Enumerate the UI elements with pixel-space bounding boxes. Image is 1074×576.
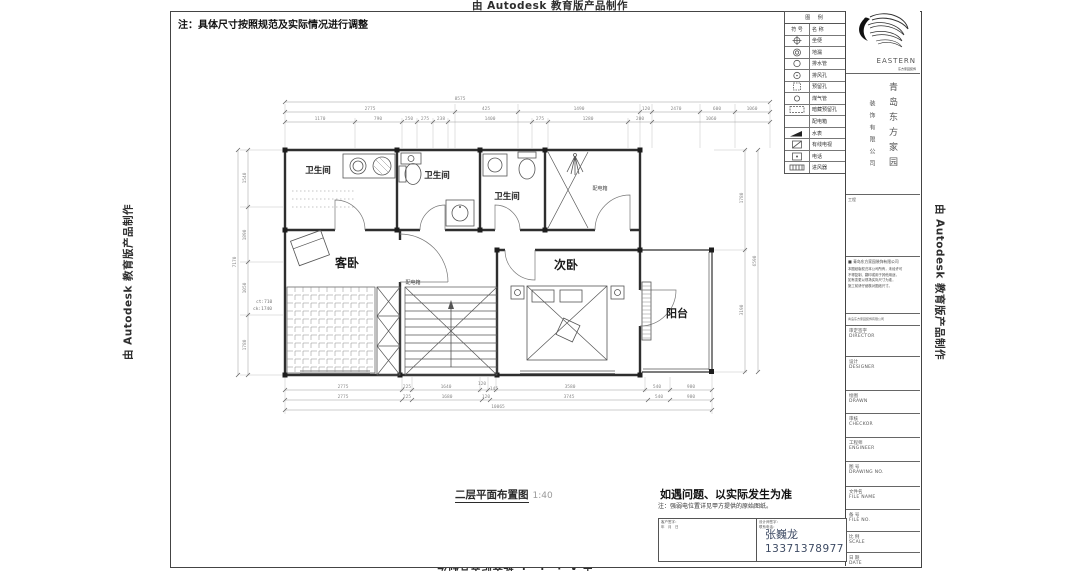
- dim-label: 540: [655, 394, 663, 400]
- blank-symbol: [785, 116, 810, 127]
- dim-label: 1490: [574, 106, 585, 112]
- company-address-line: 青岛东方家园装饰有限公司: [846, 314, 920, 326]
- bathroom-middle-fixtures: [399, 153, 474, 226]
- row-label-en: DRAWING NO.: [849, 470, 920, 475]
- row-label-en: ENGINEER: [849, 446, 920, 451]
- legend-row: 电话: [785, 151, 846, 163]
- bathroom-right-fixtures: [483, 152, 536, 179]
- label-distribution-box-upper: 配电箱: [592, 185, 607, 192]
- signature-box: 客户签字： 年 月 日 设计师签字： 联系电话： 张巍龙 13371378977: [658, 518, 847, 562]
- legend-row: 坐便: [785, 36, 846, 48]
- annotation-ct: ct:710: [256, 299, 273, 305]
- dim-label: 2775: [365, 106, 376, 112]
- double-circle-icon: [785, 47, 810, 58]
- legend-row: 水表: [785, 128, 846, 140]
- legend-name: 排水管: [810, 59, 846, 70]
- label-distribution-box-lower: 配电箱: [405, 279, 420, 286]
- dim-label: 425: [482, 106, 490, 112]
- titleblock-row-file-no: 备 号 FILE NO.: [846, 510, 920, 532]
- dim-label: 7170: [232, 256, 238, 267]
- dim-label: 6590: [752, 255, 758, 266]
- row-label-en: FILE NAME: [849, 495, 920, 500]
- dim-label: 275: [421, 116, 429, 122]
- dim-label: 1680: [442, 394, 453, 400]
- phone-outlet-icon: [785, 151, 810, 162]
- legend-name: 有线电视: [810, 139, 846, 150]
- designer-phone: 13371378977: [765, 542, 844, 557]
- row-label-en: DIRECTOR: [849, 334, 920, 339]
- row-label-en: CHECKOR: [849, 422, 920, 427]
- titleblock-row-drawn: 绘图 DRAWN: [846, 391, 920, 414]
- client-signature-cell: 客户签字： 年 月 日: [659, 519, 757, 561]
- dim-label: 1170: [315, 116, 326, 122]
- room-label-balcony: 阳台: [666, 306, 688, 320]
- dim-label: 2775: [338, 384, 349, 390]
- circle-icon: [785, 59, 810, 70]
- row-label-en: DESIGNER: [849, 365, 920, 370]
- legend-row: 排风孔: [785, 70, 846, 82]
- titleblock-row-director: 审定签字 DIRECTOR: [846, 326, 920, 357]
- company-bullet-line: 青岛东方家园装饰有限公司: [848, 259, 918, 265]
- row-label-en: FILE NO.: [849, 518, 920, 523]
- legend-col-name: 名 称: [810, 24, 846, 35]
- stairs: [405, 287, 497, 375]
- legend-name: 坐便: [810, 36, 846, 47]
- row-label-en: DATE: [849, 561, 920, 566]
- dim-label: 10065: [491, 404, 505, 410]
- dim-label: 2775: [338, 394, 349, 400]
- dim-label: 980: [687, 384, 695, 390]
- water-meter-icon: [785, 128, 810, 139]
- site-notice-note: 注：强弱电位置详见甲方提供的原始图纸。: [658, 501, 772, 510]
- company-name-left-column: 装饰有限公司: [867, 100, 876, 193]
- drawing-scale: 1:40: [533, 491, 553, 501]
- dim-label: 1890: [242, 229, 248, 240]
- dimension-lines: [238, 102, 770, 410]
- floor-plan: 8575 2775 425 1490 120 2470 600 1060 117…: [230, 90, 775, 440]
- legend-name: 地漏: [810, 47, 846, 58]
- copyright-notes-cell: 青岛东方家园装饰有限公司 本图纸版权归本公司所有，未经许可 不得复制、翻印或用于…: [846, 257, 920, 314]
- legend-row: 配电箱: [785, 116, 846, 128]
- eastern-swoosh-logo: [846, 11, 920, 59]
- legend-name: 暗藏预留孔: [810, 105, 846, 116]
- logo-wordmark: EASTERN: [846, 57, 916, 65]
- signature-rows: 审定签字 DIRECTOR 设计 DESIGNER 绘图 DRAWN 审核 CH…: [846, 326, 920, 566]
- dim-label: 2470: [671, 106, 682, 112]
- legend-name: 预留孔: [810, 82, 846, 93]
- dim-label: 540: [653, 384, 661, 390]
- legend-name: 水表: [810, 128, 846, 139]
- dim-label: 980: [687, 394, 695, 400]
- legend-row: 预留孔: [785, 82, 846, 94]
- bathroom-left-fixtures: [292, 154, 395, 207]
- drawing-title-text: 二层平面布置图: [455, 489, 529, 503]
- dim-label: 600: [713, 106, 721, 112]
- dim-label: 1280: [583, 116, 594, 122]
- balcony-detail: [642, 282, 651, 340]
- titleblock-row-file-name: 文件名 FILE NAME: [846, 487, 920, 510]
- tv-outlet-icon: [785, 139, 810, 150]
- cad-plot-page: { "watermark": "由 Autodesk 教育版产品制作", "no…: [0, 0, 1074, 576]
- dashed-square-icon: [785, 82, 810, 93]
- guest-bedroom-furniture: [287, 230, 400, 375]
- site-notice: 如遇问题、以实际发生为准: [660, 486, 792, 502]
- circle-dot-icon: [785, 70, 810, 81]
- designer-signature-cell: 设计师签字： 联系电话： 张巍龙 13371378977: [757, 519, 846, 561]
- project-name-cell: 工程: [846, 195, 920, 258]
- dim-label: 225: [403, 394, 411, 400]
- dim-label: 250: [405, 116, 413, 122]
- dim-label: 120: [478, 381, 486, 387]
- client-date-label: 年 月 日: [661, 525, 679, 530]
- drawing-title: 二层平面布置图1:40: [455, 487, 553, 502]
- legend-row: 暗藏预留孔: [785, 105, 846, 117]
- titleblock-row-date: 日 期 DATE: [846, 553, 920, 566]
- dim-label: 790: [374, 116, 382, 122]
- second-bedroom-furniture: [511, 286, 624, 360]
- dim-label: 3745: [564, 394, 575, 400]
- room-label-guest-bedroom: 客卧: [334, 255, 359, 270]
- legend-row: 进风器: [785, 162, 846, 173]
- dim-label: 1540: [242, 172, 248, 183]
- designer-signature: 张巍龙 13371378977: [765, 527, 844, 557]
- dashed-rect-icon: [785, 105, 810, 116]
- dim-label: 1060: [747, 106, 758, 112]
- dim-label: 1400: [485, 116, 496, 122]
- dim-label: 1050: [242, 282, 248, 293]
- titleblock-row-drawing-no: 图 号 DRAWING NO.: [846, 462, 920, 487]
- dim-label: 3580: [565, 384, 576, 390]
- company-logo-cell: EASTERN 东方家园装饰: [846, 11, 920, 74]
- dim-label: 145: [490, 386, 498, 392]
- dimension-ticks: [236, 100, 772, 412]
- legend-title: 图 例: [785, 12, 846, 24]
- dim-label: 225: [403, 384, 411, 390]
- dim-label: 1780: [739, 192, 745, 203]
- legend-table: 图 例 符 号 名 称 坐便 地漏 排水管 排风孔 预留孔 煤气管 暗藏预留孔 …: [784, 11, 847, 174]
- dim-label: 1640: [441, 384, 452, 390]
- titleblock-row-checkor: 审核 CHECKOR: [846, 414, 920, 438]
- dim-label: 8575: [455, 96, 466, 102]
- titleblock-row-engineer: 工程师 ENGINEER: [846, 438, 920, 462]
- shower-area: [548, 152, 588, 228]
- titleblock-row-scale: 比 例 SCALE: [846, 532, 920, 553]
- row-label-en: SCALE: [849, 540, 920, 545]
- company-name-cell: 装饰有限公司 青岛东方家园: [846, 74, 920, 194]
- legend-name: 排风孔: [810, 70, 846, 81]
- legend-name: 煤气管: [810, 93, 846, 104]
- dim-label: 1060: [706, 116, 717, 122]
- legend-header-row: 符 号 名 称: [785, 24, 846, 36]
- title-block: EASTERN 东方家园装饰 装饰有限公司 青岛东方家园 工程 青岛东方家园装饰…: [845, 11, 920, 566]
- logo-subtext: 东方家园装饰: [846, 67, 916, 71]
- dim-label: 238: [437, 116, 445, 122]
- room-label-bath-right: 卫生间: [494, 191, 520, 202]
- legend-row: 地漏: [785, 47, 846, 59]
- autodesk-watermark-right: 由 Autodesk 教育版产品制作: [933, 204, 948, 360]
- dim-label: 120: [482, 394, 490, 400]
- dim-label: 3190: [739, 304, 745, 315]
- door-swings: [335, 195, 676, 326]
- dim-label: 200: [636, 116, 644, 122]
- circle-small-icon: [785, 93, 810, 104]
- autodesk-watermark-left: 由 Autodesk 教育版产品制作: [121, 204, 136, 360]
- annotation-ck: ck:1740: [253, 306, 272, 312]
- room-label-bath-mid: 卫生间: [424, 170, 450, 181]
- client-signature-labels: 客户签字： 年 月 日: [661, 520, 679, 531]
- legend-row: 有线电视: [785, 139, 846, 151]
- dim-label: 1780: [242, 339, 248, 350]
- designer-name: 张巍龙: [765, 527, 844, 542]
- company-name-right-column: 青岛东方家园: [886, 82, 899, 193]
- legend-row: 排水管: [785, 59, 846, 71]
- legend-col-symbol: 符 号: [785, 24, 810, 35]
- note-line: 施工前请仔细核对图纸尺寸。: [848, 284, 918, 289]
- titleblock-row-designer: 设计 DESIGNER: [846, 357, 920, 391]
- dim-label: 275: [536, 116, 544, 122]
- room-label-bath-left: 卫生间: [305, 165, 331, 176]
- crossed-circle-icon: [785, 36, 810, 47]
- vent-icon: [785, 162, 810, 173]
- row-label-en: DRAWN: [849, 399, 920, 404]
- legend-name: 电话: [810, 151, 846, 162]
- general-note: 注：具体尺寸按照规范及实际情况进行调整: [178, 16, 368, 31]
- legend-name: 配电箱: [810, 116, 846, 127]
- legend-row: 煤气管: [785, 93, 846, 105]
- dim-label: 120: [642, 106, 650, 112]
- legend-name: 进风器: [810, 162, 846, 173]
- room-label-second-bedroom: 次卧: [554, 257, 578, 272]
